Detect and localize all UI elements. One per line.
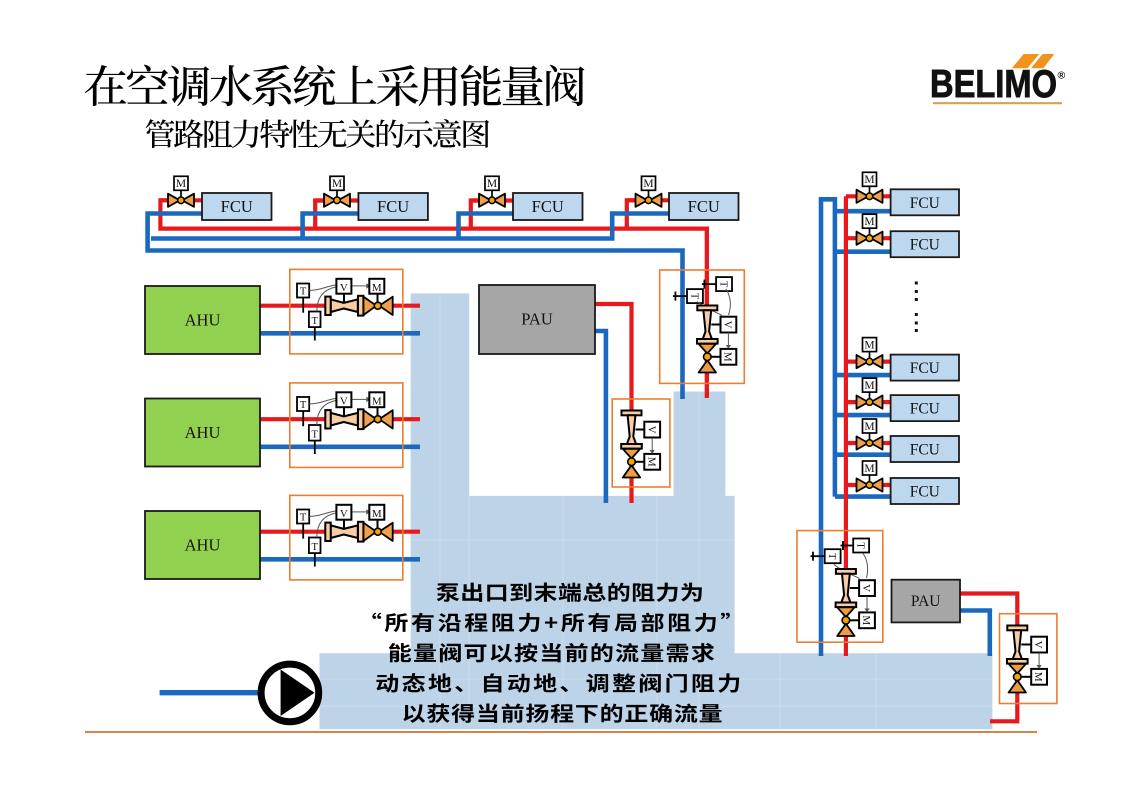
svg-text:M: M	[372, 395, 382, 407]
svg-text:V: V	[860, 584, 872, 592]
svg-text:M: M	[372, 282, 382, 294]
svg-text:M: M	[176, 178, 186, 190]
svg-text:T: T	[689, 293, 700, 300]
svg-text:T: T	[826, 553, 837, 560]
svg-text:T: T	[855, 542, 866, 549]
svg-text:FCU: FCU	[910, 360, 940, 377]
svg-text:M: M	[864, 339, 874, 351]
svg-text:T: T	[300, 287, 307, 298]
svg-text:T: T	[718, 281, 729, 288]
svg-text:M: M	[645, 457, 657, 467]
svg-text:T: T	[311, 316, 318, 327]
svg-text:M: M	[864, 174, 874, 186]
svg-text:T: T	[300, 513, 307, 524]
svg-text:AHU: AHU	[185, 423, 221, 442]
svg-text:V: V	[340, 508, 348, 520]
svg-text:FCU: FCU	[910, 401, 940, 418]
svg-text:BELIMO: BELIMO	[930, 63, 1057, 106]
svg-text:FCU: FCU	[910, 195, 940, 212]
svg-text:V: V	[1032, 641, 1044, 649]
svg-text:M: M	[643, 178, 653, 190]
svg-text:FCU: FCU	[910, 484, 940, 501]
svg-text:T: T	[300, 400, 307, 411]
svg-text:M: M	[722, 352, 734, 362]
svg-text:M: M	[487, 178, 497, 190]
svg-text:M: M	[332, 178, 342, 190]
svg-text:V: V	[340, 395, 348, 407]
svg-text:M: M	[1032, 672, 1044, 682]
svg-text:®: ®	[1058, 70, 1066, 82]
svg-text:T: T	[311, 429, 318, 440]
svg-text:V: V	[722, 321, 734, 329]
svg-text:AHU: AHU	[185, 311, 221, 330]
svg-text:FCU: FCU	[688, 197, 720, 216]
svg-text:FCU: FCU	[910, 442, 940, 459]
svg-text:FCU: FCU	[221, 197, 253, 216]
svg-text:V: V	[645, 426, 657, 434]
svg-text:V: V	[340, 282, 348, 294]
svg-text:M: M	[860, 615, 872, 625]
svg-text:FCU: FCU	[910, 237, 940, 254]
svg-text:PAU: PAU	[521, 310, 553, 329]
svg-text:M: M	[864, 380, 874, 392]
svg-text:AHU: AHU	[185, 536, 221, 555]
svg-text:PAU: PAU	[911, 593, 941, 610]
svg-text:M: M	[864, 216, 874, 228]
svg-text:T: T	[311, 542, 318, 553]
svg-text:FCU: FCU	[377, 197, 409, 216]
svg-text:M: M	[864, 463, 874, 475]
svg-text:FCU: FCU	[532, 197, 564, 216]
svg-text:M: M	[372, 508, 382, 520]
svg-text:M: M	[864, 421, 874, 433]
